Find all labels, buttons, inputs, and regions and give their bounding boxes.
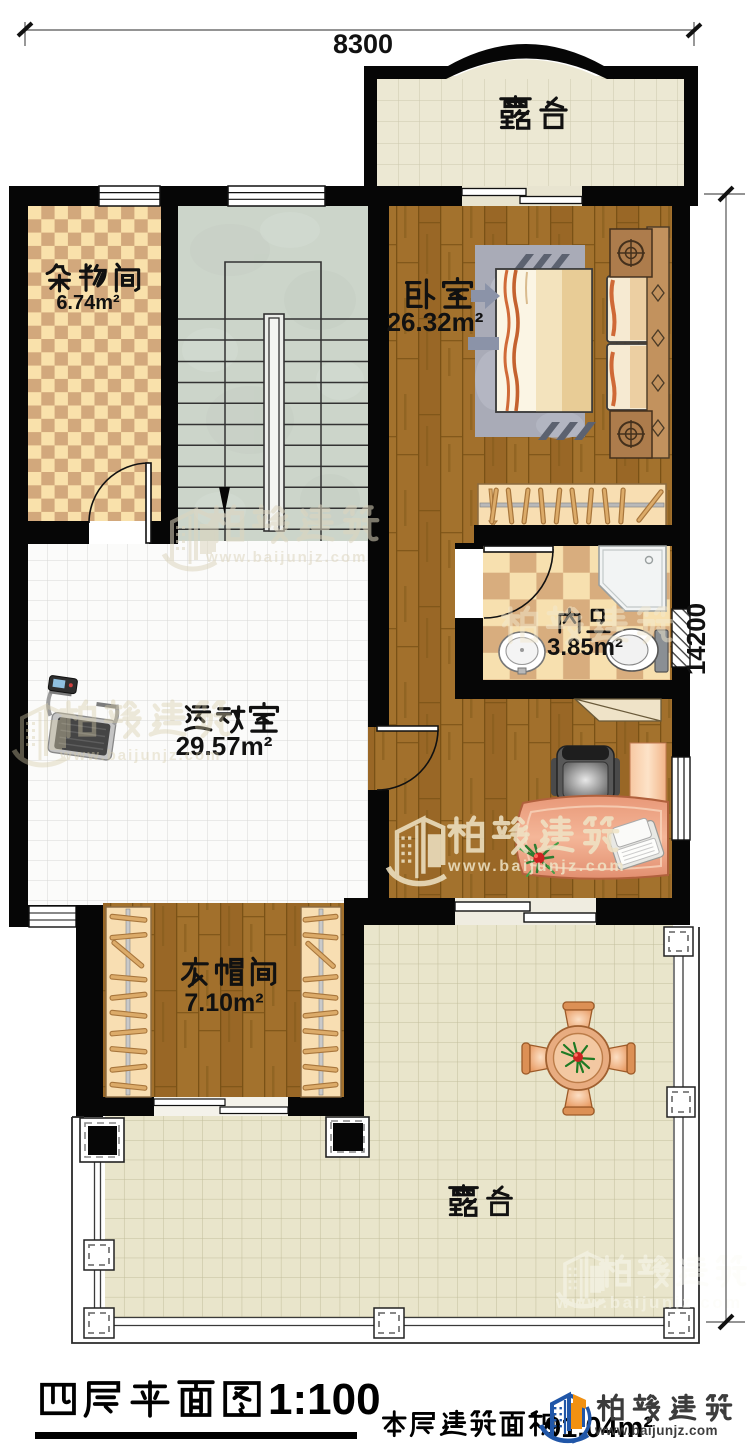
svg-text:www.baijunjz.com: www.baijunjz.com <box>59 747 221 764</box>
svg-text:26.32m²: 26.32m² <box>387 307 484 337</box>
svg-text:14200: 14200 <box>681 603 711 675</box>
svg-text:www.baijunjz.com: www.baijunjz.com <box>594 1423 718 1438</box>
svg-text:www.baijunjz.com: www.baijunjz.com <box>447 858 626 875</box>
svg-text:8300: 8300 <box>333 29 393 59</box>
svg-text:1:100: 1:100 <box>268 1375 381 1424</box>
svg-text:www.baijunjz.com: www.baijunjz.com <box>205 549 367 566</box>
svg-text:7.10m²: 7.10m² <box>184 989 263 1017</box>
svg-text:www.baijunjz.com: www.baijunjz.com <box>555 1293 743 1312</box>
svg-text:6.74m²: 6.74m² <box>56 292 120 314</box>
